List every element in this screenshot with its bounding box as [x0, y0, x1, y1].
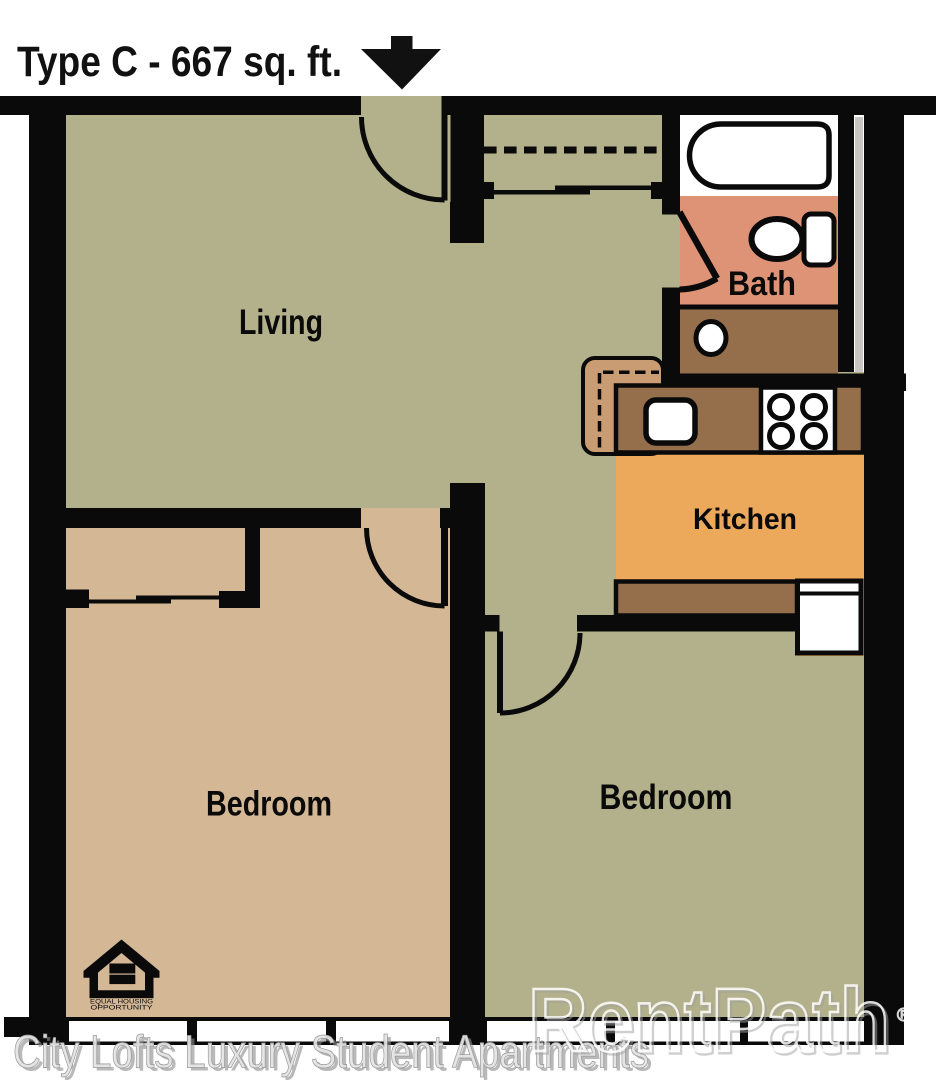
- svg-text:Bath: Bath: [728, 265, 796, 303]
- svg-text:Kitchen: Kitchen: [693, 503, 797, 536]
- svg-text:Bedroom: Bedroom: [600, 778, 733, 817]
- svg-text:Living: Living: [239, 303, 323, 342]
- svg-text:Bedroom: Bedroom: [206, 785, 332, 824]
- svg-text:®: ®: [897, 1005, 910, 1025]
- svg-text:OPPORTUNITY: OPPORTUNITY: [91, 1005, 153, 1012]
- svg-text:Type C - 667 sq. ft.: Type C - 667 sq. ft.: [17, 38, 342, 86]
- svg-text:RentPath: RentPath: [528, 971, 890, 1071]
